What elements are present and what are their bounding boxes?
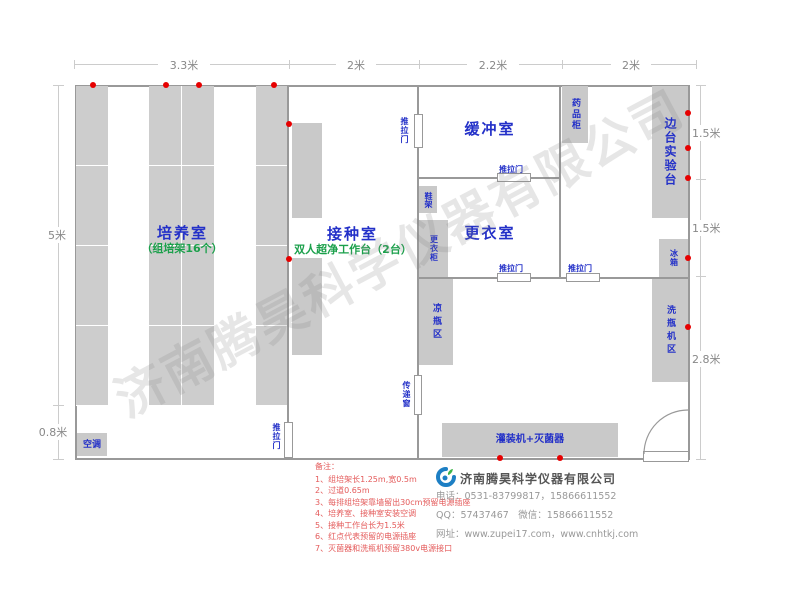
dim-right-1: 1.5米	[690, 125, 723, 141]
air-conditioner: 空调	[77, 433, 107, 456]
power-socket-dot	[685, 324, 691, 330]
side-bench-label: 边台实验台	[665, 117, 675, 187]
power-socket-dot	[685, 255, 691, 261]
sliding-door-cultivation	[284, 422, 293, 458]
dim-right-2: 1.5米	[690, 220, 723, 236]
sliding-door-changing-bottom	[497, 273, 531, 282]
medicine-cabinet: 药品柜	[562, 86, 588, 143]
power-socket-dot	[557, 455, 563, 461]
wall-buffer-changing	[417, 177, 561, 179]
floor-plan-canvas: 3.3米 2米 2.2米 2米 5米 0.8米 1.5米 1.5米 2.8米 空…	[0, 0, 800, 600]
dim-line-right	[700, 85, 701, 460]
medicine-cabinet-label: 药品柜	[570, 98, 580, 131]
company-logo-icon	[436, 467, 456, 487]
power-socket-dot	[163, 82, 169, 88]
dim-tick	[53, 459, 64, 460]
room-sub-cultivation: （组培架16个）	[117, 240, 247, 256]
dim-tick	[696, 179, 706, 180]
dim-tick	[74, 60, 75, 69]
sliding-door-buffer-left	[414, 114, 423, 148]
sliding-door-label: 推拉门	[568, 264, 592, 273]
wall-cultivation-inoculation	[287, 85, 289, 460]
cooling-bottle-area: 凉瓶区	[419, 279, 453, 365]
air-conditioner-label: 空调	[83, 440, 101, 450]
dim-tick	[289, 60, 290, 69]
company-qq-wechat: QQ：57437467 微信：15866611552	[436, 507, 613, 521]
dim-top-2: 2米	[336, 57, 376, 73]
transfer-window	[414, 375, 422, 415]
dim-left-1: 5米	[40, 227, 74, 243]
dim-tick	[696, 276, 706, 277]
power-socket-dot	[271, 82, 277, 88]
cooling-bottle-area-label: 凉瓶区	[431, 303, 441, 342]
sliding-door-label: 推拉门	[499, 165, 523, 174]
filling-machine-sterilizer-label: 灌装机+灭菌器	[496, 435, 564, 445]
power-socket-dot	[685, 145, 691, 151]
shoe-rack-label: 鞋架	[423, 192, 433, 208]
dim-tick	[696, 60, 697, 69]
sliding-door-label: 推拉门	[499, 264, 523, 273]
dim-tick	[53, 85, 64, 86]
wardrobe-label: 更衣柜	[429, 235, 439, 262]
wall-changing-bottom-room	[417, 277, 690, 279]
sliding-door-label: 推拉门	[400, 117, 409, 144]
dim-top-3: 2.2米	[467, 57, 519, 73]
side-bench: 边台实验台	[652, 86, 688, 218]
dim-left-2: 0.8米	[30, 424, 76, 440]
clean-bench-1	[292, 123, 322, 218]
culture-rack-column-1	[76, 86, 108, 406]
dim-line-left	[58, 85, 59, 460]
sliding-door-label: 推拉门	[272, 423, 281, 450]
room-label-buffer: 缓冲室	[451, 118, 529, 139]
bottle-washer-area: 洗瓶机区	[652, 279, 688, 382]
dim-right-3: 2.8米	[690, 351, 723, 367]
power-socket-dot	[286, 121, 292, 127]
room-label-changing: 更衣室	[451, 222, 529, 243]
bottle-washer-area-label: 洗瓶机区	[665, 305, 675, 357]
company-name: 济南腾昊科学仪器有限公司	[460, 470, 616, 487]
dim-top-4: 2米	[611, 57, 651, 73]
wall-buffer-right-room	[559, 85, 561, 279]
shoe-rack: 鞋架	[419, 186, 437, 213]
note-item: 7、灭菌器和洗瓶机预留380v电源接口	[315, 543, 470, 555]
dim-top-1: 3.3米	[158, 57, 210, 73]
company-phone: 电话：0531-83799817，15866611552	[436, 488, 616, 502]
fridge: 冰箱	[659, 239, 688, 277]
sliding-door-right-room	[566, 273, 600, 282]
filling-machine-sterilizer: 灌装机+灭菌器	[442, 423, 618, 457]
power-socket-dot	[196, 82, 202, 88]
fridge-label: 冰箱	[669, 249, 679, 267]
sliding-door-buffer-bottom	[497, 173, 531, 182]
dim-tick	[562, 60, 563, 69]
power-socket-dot	[286, 256, 292, 262]
power-socket-dot	[685, 110, 691, 116]
power-socket-dot	[497, 455, 503, 461]
power-socket-dot	[90, 82, 96, 88]
dim-tick	[53, 405, 64, 406]
company-website: 网址：www.zupei17.com，www.cnhtkj.com	[436, 526, 638, 540]
dim-tick	[419, 60, 420, 69]
transfer-window-label: 传递窗	[402, 381, 411, 408]
swing-door-arc	[640, 408, 692, 460]
room-sub-inoculation: 双人超净工作台（2台）	[280, 241, 426, 257]
dim-tick	[696, 85, 706, 86]
dim-tick	[696, 459, 706, 460]
clean-bench-2	[292, 258, 322, 355]
power-socket-dot	[685, 175, 691, 181]
